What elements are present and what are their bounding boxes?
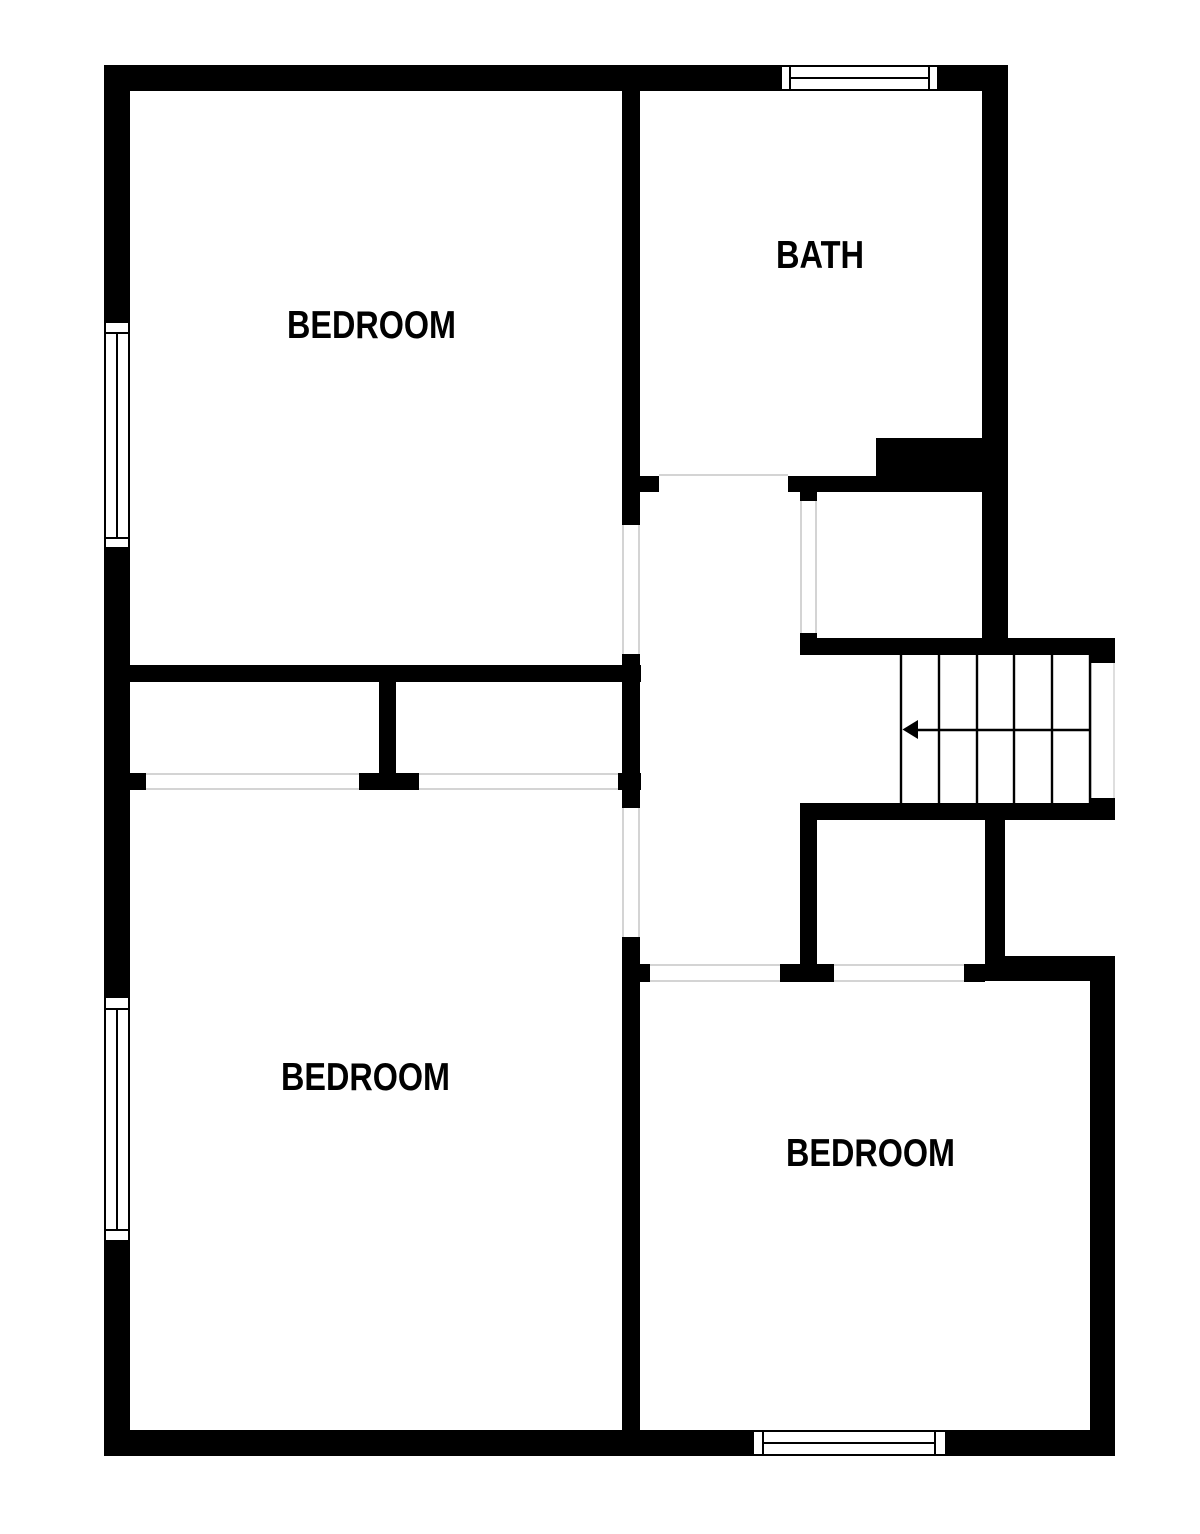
- svg-text:BEDROOM: BEDROOM: [786, 1132, 955, 1175]
- svg-text:BEDROOM: BEDROOM: [287, 304, 456, 347]
- svg-text:BATH: BATH: [776, 234, 864, 277]
- svg-text:BEDROOM: BEDROOM: [281, 1056, 450, 1099]
